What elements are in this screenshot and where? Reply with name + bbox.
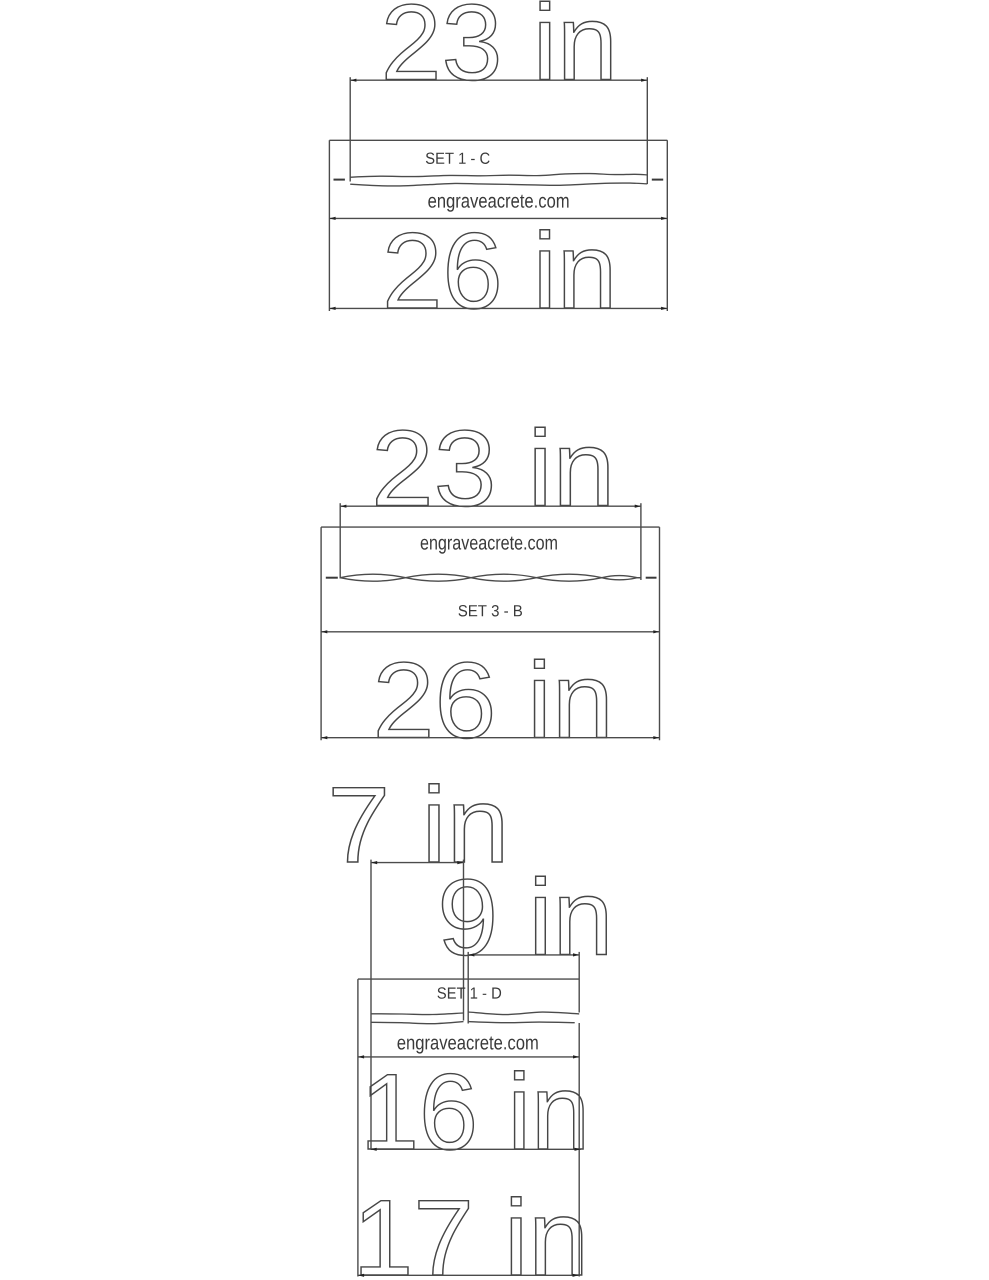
- svg-text:17 in: 17 in: [353, 1177, 589, 1280]
- svg-text:26 in: 26 in: [382, 210, 617, 331]
- svg-text:26 in: 26 in: [373, 639, 614, 760]
- svg-text:23 in: 23 in: [381, 0, 618, 103]
- svg-text:16 in: 16 in: [360, 1051, 590, 1172]
- svg-text:23 in: 23 in: [371, 408, 615, 529]
